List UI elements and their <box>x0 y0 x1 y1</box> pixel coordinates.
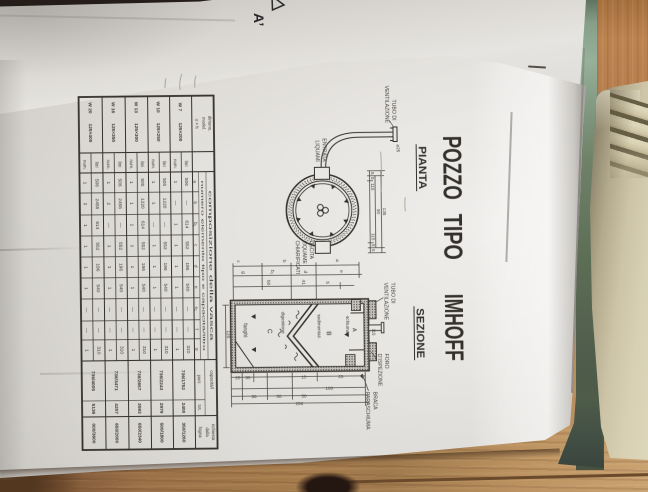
svg-text:614: 614 <box>94 221 100 229</box>
svg-text:1: 1 <box>150 181 156 184</box>
svg-text:1: 1 <box>82 224 88 227</box>
svg-text:1: 1 <box>150 202 156 205</box>
svg-text:VENTILAZIONE: VENTILAZIONE <box>383 86 389 124</box>
svg-text:540: 540 <box>140 284 146 292</box>
svg-text:5: 5 <box>370 172 375 175</box>
svg-text:736/1752: 736/1752 <box>180 370 186 390</box>
svg-text:1: 1 <box>106 266 112 269</box>
svg-text:num.: num. <box>129 159 134 169</box>
svg-text:W 16: W 16 <box>110 102 116 114</box>
svg-text:115: 115 <box>371 329 376 336</box>
svg-text:—: — <box>141 307 146 312</box>
svg-text:196: 196 <box>94 263 100 271</box>
svg-text:1: 1 <box>129 287 135 290</box>
svg-text:2456: 2456 <box>117 198 123 209</box>
svg-text:B: B <box>325 331 332 335</box>
svg-text:richiesta: richiesta <box>211 424 216 441</box>
svg-text:A: A <box>351 328 357 332</box>
svg-text:614: 614 <box>140 221 146 229</box>
svg-text:1: 1 <box>129 266 135 269</box>
svg-text:schiuma: schiuma <box>345 316 350 334</box>
svg-text:506: 506 <box>93 179 99 187</box>
svg-text:D’ISPEZIONE: D’ISPEZIONE <box>376 354 382 387</box>
svg-text:USCITA: USCITA <box>308 240 314 259</box>
svg-text:num.: num. <box>151 159 156 169</box>
svg-text:196: 196 <box>140 263 146 271</box>
svg-text:125×250: 125×250 <box>155 123 161 142</box>
svg-text:—: — <box>163 307 168 312</box>
svg-text:1: 1 <box>82 182 88 185</box>
svg-text:552: 552 <box>117 242 123 250</box>
svg-text:LIQUAMI: LIQUAMI <box>314 140 320 161</box>
svg-text:90: 90 <box>376 209 381 215</box>
svg-text:552: 552 <box>140 242 146 250</box>
svg-text:e: e <box>193 286 198 289</box>
svg-text:—: — <box>83 328 88 333</box>
svg-text:FORO: FORO <box>383 354 389 369</box>
svg-text:650/2340: 650/2340 <box>136 423 142 443</box>
svg-text:—: — <box>174 307 179 312</box>
svg-text:310: 310 <box>95 346 101 354</box>
svg-text:BRACA: BRACA <box>371 392 377 410</box>
svg-text:—: — <box>152 327 157 332</box>
svg-text:1: 1 <box>83 266 89 269</box>
svg-text:ENTRATA: ENTRATA <box>321 138 327 162</box>
svg-text:15: 15 <box>301 374 307 379</box>
svg-text:—: — <box>118 328 123 333</box>
svg-text:—: — <box>185 306 190 311</box>
svg-text:—: — <box>95 328 100 333</box>
svg-text:506: 506 <box>161 178 167 186</box>
svg-text:1: 1 <box>128 202 134 205</box>
svg-text:1: 1 <box>173 286 179 289</box>
svg-text:b₁: b₁ <box>192 222 198 227</box>
svg-text:1: 1 <box>174 348 180 351</box>
svg-text:350/1260: 350/1260 <box>180 422 186 442</box>
svg-text:—: — <box>118 307 123 312</box>
svg-text:TUBO DI: TUBO DI <box>390 99 396 120</box>
svg-text:—: — <box>141 327 146 332</box>
svg-text:20: 20 <box>235 375 241 380</box>
svg-text:—: — <box>106 307 111 312</box>
svg-text:—: — <box>183 200 188 205</box>
svg-text:100: 100 <box>325 386 333 391</box>
svg-text:5: 5 <box>371 244 376 247</box>
svg-text:650/2000: 650/2000 <box>113 423 119 443</box>
svg-text:digestione: digestione <box>280 312 286 334</box>
svg-text:50: 50 <box>301 393 307 398</box>
svg-text:196: 196 <box>117 263 123 271</box>
svg-text:1: 1 <box>151 286 157 289</box>
svg-text:VENTILAZIONE: VENTILAZIONE <box>382 283 388 321</box>
svg-text:125×300: 125×300 <box>133 123 139 142</box>
svg-text:dalla: dalla <box>205 427 210 437</box>
svg-text:135: 135 <box>382 208 387 216</box>
svg-text:numero elemento tipo e capacit: numero elemento tipo e capacità/litro <box>200 181 207 351</box>
svg-text:2400: 2400 <box>180 403 186 414</box>
svg-text:736/4005: 736/4005 <box>90 371 96 391</box>
svg-text:552: 552 <box>162 242 168 250</box>
svg-text:125: 125 <box>225 330 231 338</box>
svg-text:—: — <box>105 223 110 228</box>
svg-text:o × h: o × h <box>194 119 199 130</box>
svg-text:4207: 4207 <box>113 403 119 414</box>
svg-text:—: — <box>129 328 134 333</box>
svg-text:196: 196 <box>184 262 190 270</box>
svg-text:1: 1 <box>152 348 158 351</box>
svg-text:50: 50 <box>265 280 271 286</box>
svg-text:b: b <box>192 201 198 204</box>
svg-text:PIANTA: PIANTA <box>416 146 428 189</box>
svg-text:1: 1 <box>173 223 179 226</box>
svg-text:num.: num. <box>106 160 111 170</box>
svg-text:505: 505 <box>139 178 145 186</box>
svg-text:num.: num. <box>82 160 87 170</box>
svg-text:1: 1 <box>173 265 179 268</box>
svg-text:model.: model. <box>201 117 206 130</box>
svg-text:1: 1 <box>129 245 135 248</box>
svg-text:000/3600: 000/3600 <box>90 423 96 443</box>
svg-text:2: 2 <box>82 203 88 206</box>
svg-text:e₁: e₁ <box>193 307 198 312</box>
svg-text:310: 310 <box>141 346 147 354</box>
svg-text:500/1800: 500/1800 <box>158 423 164 443</box>
svg-text:540: 540 <box>94 284 100 292</box>
svg-text:parz.: parz. <box>197 375 202 385</box>
svg-text:litri: litri <box>94 162 99 168</box>
svg-text:1: 1 <box>130 349 136 352</box>
svg-text:736/2243: 736/2243 <box>158 370 164 390</box>
svg-text:—: — <box>174 327 179 332</box>
svg-text:e: e <box>338 270 343 273</box>
svg-text:310: 310 <box>118 346 124 354</box>
svg-text:—: — <box>83 308 88 313</box>
svg-text:25: 25 <box>338 374 344 379</box>
svg-text:1: 1 <box>128 224 134 227</box>
svg-text:5: 5 <box>370 177 375 180</box>
svg-text:115: 115 <box>371 233 376 241</box>
svg-text:W 13: W 13 <box>133 102 139 114</box>
svg-text:250: 250 <box>296 401 304 406</box>
svg-text:5: 5 <box>371 249 376 252</box>
svg-text:litri: litri <box>117 162 122 168</box>
svg-text:fogna: fogna <box>198 427 203 439</box>
svg-text:dimens.: dimens. <box>207 116 212 131</box>
svg-text:num.: num. <box>173 159 178 169</box>
svg-text:litri: litri <box>140 161 145 167</box>
svg-text:1: 1 <box>84 349 90 352</box>
svg-text:540: 540 <box>118 284 124 292</box>
svg-text:PARASCHIUMA: PARASCHIUMA <box>364 392 370 430</box>
svg-text:736/2657: 736/2657 <box>136 370 142 390</box>
svg-text:1: 1 <box>82 245 88 248</box>
svg-text:—: — <box>107 328 112 333</box>
svg-text:1: 1 <box>173 244 179 247</box>
svg-text:a: a <box>192 180 197 183</box>
svg-text:196: 196 <box>162 263 168 271</box>
svg-text:W 20: W 20 <box>87 102 93 114</box>
svg-text:41: 41 <box>300 280 306 286</box>
svg-text:g: g <box>240 271 245 274</box>
svg-text:125×400: 125×400 <box>87 124 93 143</box>
svg-text:—: — <box>129 307 134 312</box>
svg-text:c: c <box>235 260 240 263</box>
svg-text:540: 540 <box>184 283 190 291</box>
svg-text:310: 310 <box>163 346 169 354</box>
svg-text:sedimentaz.: sedimentaz. <box>317 314 322 339</box>
svg-text:1: 1 <box>83 287 89 290</box>
svg-text:5136: 5136 <box>90 404 96 415</box>
svg-text:1220: 1220 <box>139 198 145 209</box>
svg-text:115: 115 <box>370 183 375 191</box>
svg-text:LIQUAME: LIQUAME <box>301 240 307 264</box>
svg-text:506: 506 <box>183 178 189 186</box>
svg-text:d: d <box>192 265 198 268</box>
svg-text:C: C <box>266 329 273 334</box>
svg-text:552: 552 <box>94 242 100 250</box>
svg-text:540: 540 <box>162 284 168 292</box>
svg-text:2456: 2456 <box>94 199 100 210</box>
svg-text:1: 1 <box>106 287 112 290</box>
svg-text:W 10: W 10 <box>155 102 161 114</box>
svg-text:3593: 3593 <box>136 403 142 414</box>
svg-text:litri: litri <box>184 161 189 167</box>
svg-text:litri: litri <box>162 161 167 167</box>
svg-text:1: 1 <box>151 244 157 247</box>
svg-text:—: — <box>117 223 122 228</box>
svg-text:TIPO: TIPO <box>438 214 469 260</box>
svg-text:fanghi: fanghi <box>242 323 248 337</box>
svg-text:310: 310 <box>185 345 191 353</box>
svg-text:d: d <box>302 270 308 273</box>
svg-text:50: 50 <box>276 394 282 399</box>
svg-text:1: 1 <box>172 181 178 184</box>
svg-text:—: — <box>172 201 177 206</box>
svg-text:1: 1 <box>128 181 134 184</box>
svg-text:1220: 1220 <box>161 198 167 209</box>
svg-text:b: b <box>281 260 287 263</box>
svg-text:—: — <box>151 222 156 227</box>
svg-text:CHIARIFICATI: CHIARIFICATI <box>294 241 300 275</box>
svg-text:2979: 2979 <box>158 403 164 414</box>
svg-text:2: 2 <box>105 202 111 205</box>
svg-text:1: 1 <box>151 265 157 268</box>
svg-text:tot.: tot. <box>197 405 202 411</box>
svg-text:614: 614 <box>184 220 190 228</box>
svg-text:g: g <box>193 348 198 351</box>
svg-text:TUBO DI: TUBO DI <box>389 282 395 303</box>
svg-text:POZZO: POZZO <box>437 136 468 200</box>
svg-text:capacità/l: capacità/l <box>209 370 214 389</box>
svg-text:1: 1 <box>106 245 112 248</box>
svg-text:736/3471: 736/3471 <box>113 371 119 391</box>
svg-text:—: — <box>152 307 157 312</box>
svg-text:—: — <box>185 327 190 332</box>
svg-text:30: 30 <box>245 375 251 380</box>
svg-text:⌀25: ⌀25 <box>396 144 401 152</box>
svg-text:b₁: b₁ <box>269 270 275 275</box>
svg-text:552: 552 <box>184 241 190 249</box>
svg-text:IMHOFF: IMHOFF <box>439 294 470 361</box>
svg-text:—: — <box>162 222 167 227</box>
svg-text:50: 50 <box>251 394 257 399</box>
svg-text:a: a <box>334 259 339 262</box>
svg-text:SEZIONE: SEZIONE <box>413 308 426 358</box>
svg-text:—: — <box>95 307 100 312</box>
svg-text:5: 5 <box>324 281 330 284</box>
svg-text:W 7: W 7 <box>177 103 183 112</box>
svg-text:composizione della vasca: composizione della vasca <box>208 191 215 343</box>
svg-text:125×200: 125×200 <box>177 122 183 141</box>
svg-text:1: 1 <box>107 349 113 352</box>
svg-text:125×350: 125×350 <box>110 123 116 142</box>
svg-text:506: 506 <box>116 179 122 187</box>
svg-text:—: — <box>163 327 168 332</box>
svg-text:1: 1 <box>105 181 111 184</box>
